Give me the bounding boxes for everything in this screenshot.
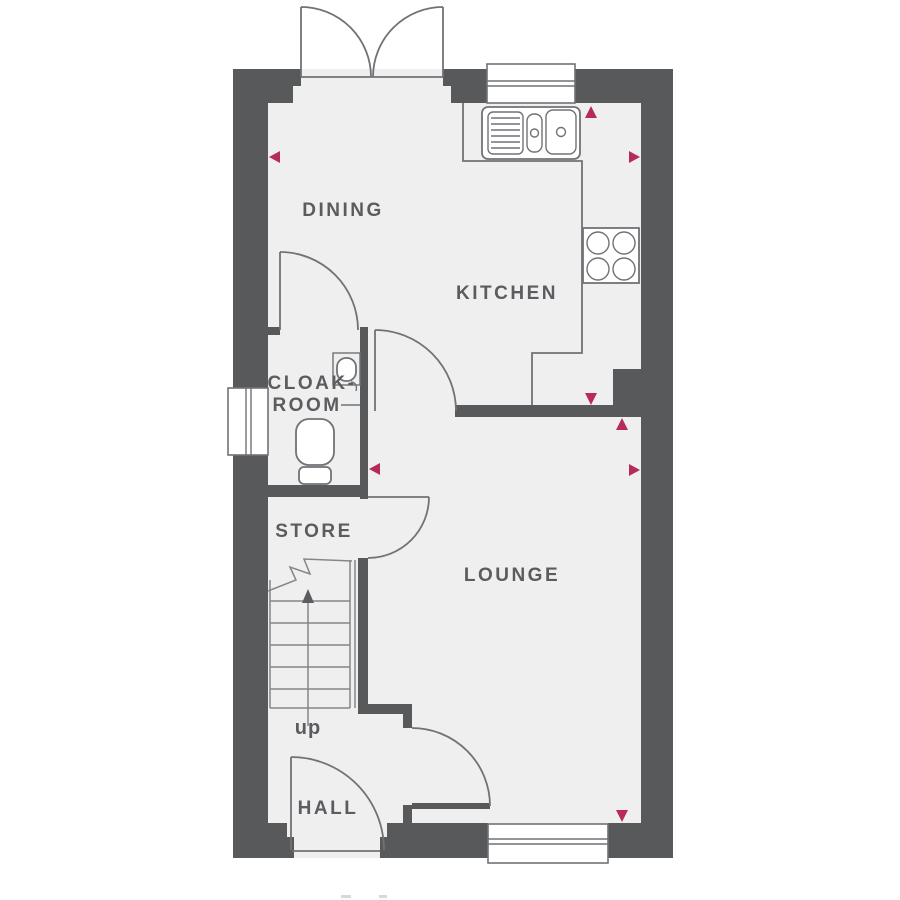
kitchen-window [487,64,575,103]
cloakroom-label-line2: ROOM [272,395,341,416]
toilet [296,419,334,484]
wall-cloakroom-bottom [268,485,368,497]
wall-store-right [358,558,368,708]
wall-store-bottom [358,704,412,714]
floor-plan-drawing: DINING KITCHEN CLOAK- ROOM STORE LOUNGE … [0,0,900,900]
stairs-up-label: up [295,717,321,739]
wall-jamb-loungedoor-top [403,714,412,728]
lounge-door-leaf [412,803,490,809]
cloakroom-window [228,388,268,455]
lounge-window [488,824,608,863]
hall-label: HALL [298,798,359,819]
cropped-caption-remnant [341,895,387,898]
wall-kitchen-lounge [455,405,613,417]
wall-top-mid [451,69,487,103]
floor-plan-canvas: DINING KITCHEN CLOAK- ROOM STORE LOUNGE … [0,0,900,900]
wall-jamb-frenchdoor-right [443,69,451,86]
lounge-label: LOUNGE [464,565,560,586]
sink-with-drainer [482,107,580,159]
wall-bottom-left [233,823,287,858]
wall-left-upper [233,103,268,388]
wall-cloakroom-stub [268,327,280,335]
wall-top-left [233,69,293,103]
kitchen-label: KITCHEN [456,283,558,304]
store-label: STORE [275,521,353,542]
wall-jamb-frenchdoor-left [293,69,301,86]
wall-jamb-loungedoor-bottom [403,805,412,823]
hob-four-rings [583,228,639,283]
wall-left-lower [233,455,268,823]
wall-bottom-mid [387,823,488,858]
wall-cloakroom-right [360,327,368,499]
wall-bottom-right [608,823,641,858]
cloakroom-label-line1: CLOAK- [268,373,357,394]
wall-top-right [575,69,673,103]
french-doors-dining [301,7,443,77]
dining-label: DINING [302,200,384,221]
wall-kitchen-lounge-stub [613,369,641,417]
wall-right [641,103,673,858]
